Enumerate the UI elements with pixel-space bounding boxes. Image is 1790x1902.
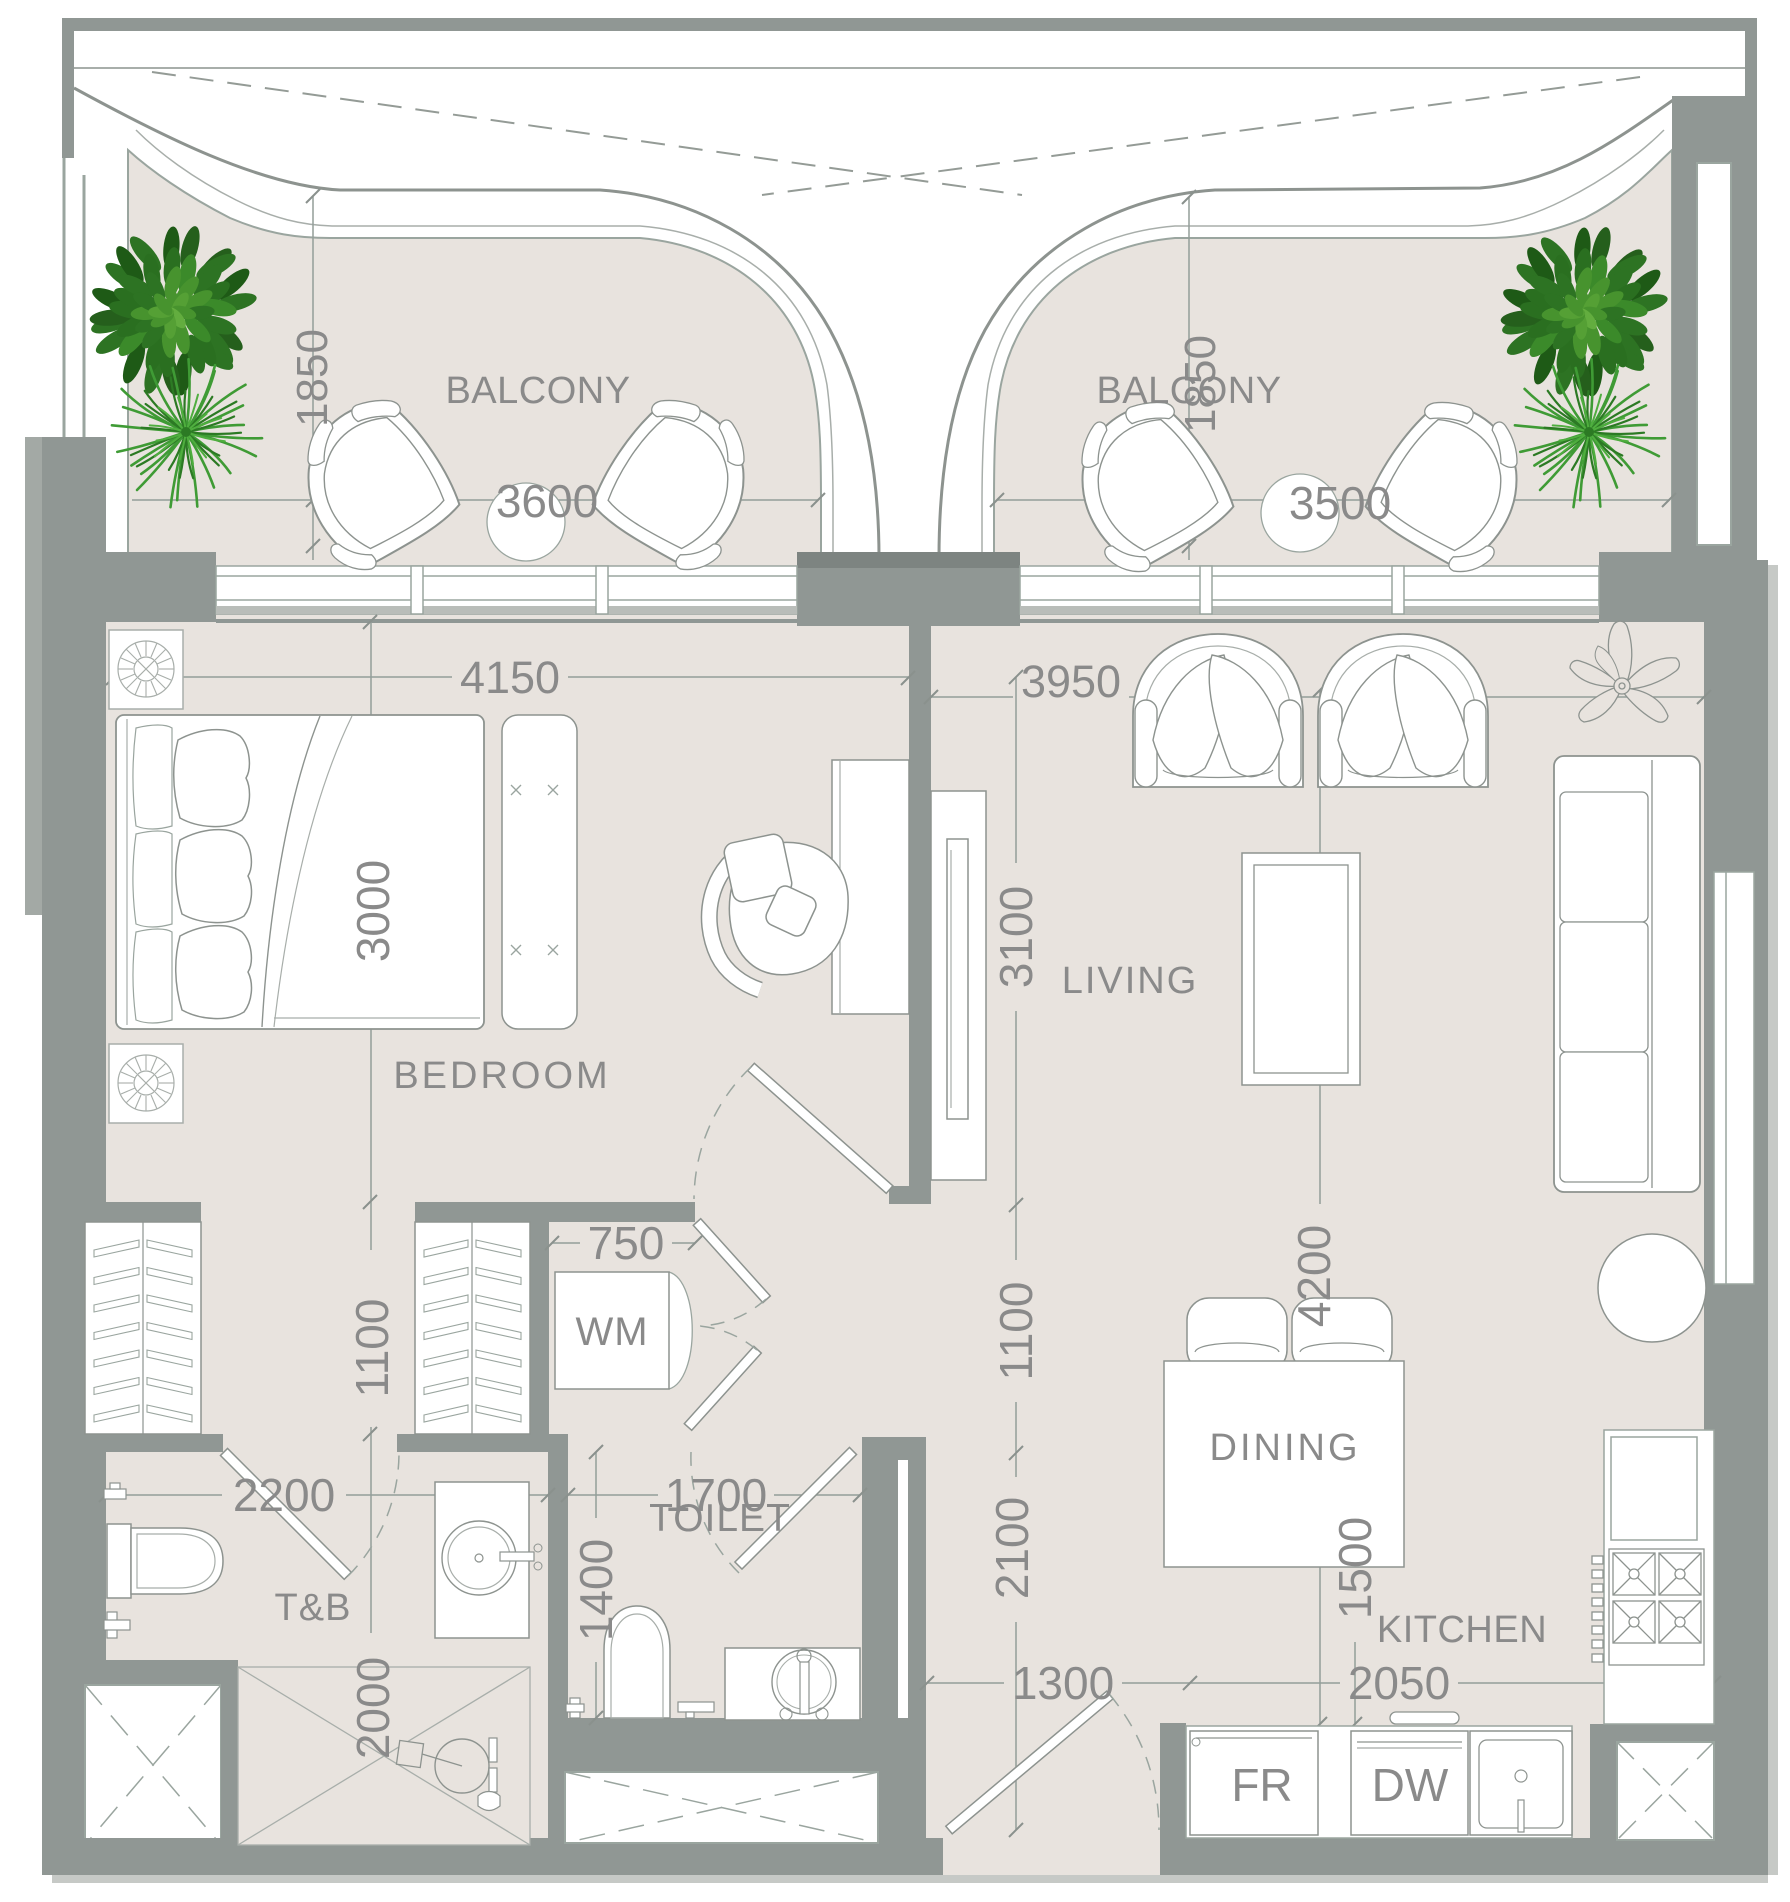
svg-text:1850: 1850 — [288, 329, 337, 427]
svg-text:1400: 1400 — [570, 1539, 622, 1641]
svg-text:750: 750 — [588, 1217, 665, 1269]
svg-text:4150: 4150 — [460, 652, 560, 703]
svg-text:WM: WM — [575, 1310, 648, 1354]
svg-text:FR: FR — [1231, 1759, 1292, 1811]
svg-text:1850: 1850 — [1176, 335, 1225, 433]
svg-text:1100: 1100 — [990, 1282, 1042, 1381]
svg-text:T&B: T&B — [275, 1587, 352, 1629]
svg-text:DINING: DINING — [1210, 1427, 1361, 1469]
svg-text:3600: 3600 — [496, 475, 598, 527]
svg-text:3500: 3500 — [1289, 477, 1391, 529]
svg-text:DW: DW — [1372, 1759, 1449, 1811]
svg-text:3100: 3100 — [990, 886, 1042, 988]
svg-text:3950: 3950 — [1021, 656, 1121, 707]
svg-text:2200: 2200 — [233, 1469, 335, 1521]
svg-text:2050: 2050 — [1348, 1657, 1450, 1709]
svg-text:BALCONY: BALCONY — [445, 370, 630, 412]
svg-text:2100: 2100 — [986, 1497, 1038, 1599]
svg-text:1100: 1100 — [346, 1299, 398, 1398]
svg-text:1700: 1700 — [665, 1469, 767, 1521]
svg-text:1500: 1500 — [1329, 1517, 1381, 1619]
svg-text:BEDROOM: BEDROOM — [393, 1055, 610, 1097]
svg-text:2000: 2000 — [347, 1657, 399, 1759]
svg-text:4200: 4200 — [1288, 1225, 1340, 1327]
svg-text:LIVING: LIVING — [1062, 960, 1199, 1002]
svg-text:KITCHEN: KITCHEN — [1377, 1609, 1547, 1651]
svg-text:1300: 1300 — [1012, 1657, 1114, 1709]
svg-text:3000: 3000 — [347, 860, 399, 962]
